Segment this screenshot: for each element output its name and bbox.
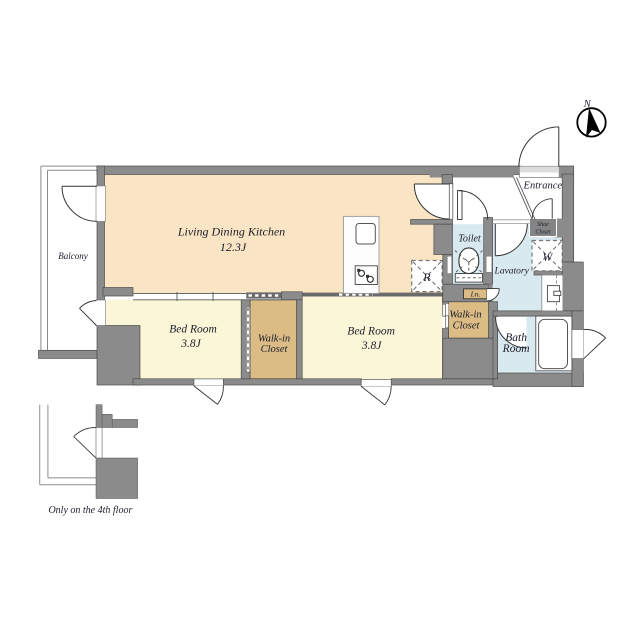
svg-text:Balcony: Balcony bbox=[58, 251, 88, 261]
svg-text:Room: Room bbox=[502, 343, 530, 355]
svg-text:W: W bbox=[543, 252, 554, 264]
svg-text:12.3J: 12.3J bbox=[220, 240, 247, 254]
svg-text:Walk-in: Walk-in bbox=[449, 310, 481, 321]
svg-text:Entrance: Entrance bbox=[523, 181, 563, 192]
svg-text:Toilet: Toilet bbox=[458, 234, 481, 245]
svg-text:Closet: Closet bbox=[261, 344, 289, 355]
svg-text:3.8J: 3.8J bbox=[361, 340, 382, 352]
svg-text:3.8J: 3.8J bbox=[180, 338, 201, 350]
svg-text:Closet: Closet bbox=[535, 230, 551, 236]
svg-text:Walk-in: Walk-in bbox=[258, 334, 290, 345]
svg-text:R: R bbox=[422, 270, 431, 284]
svg-text:Living Dining Kitchen: Living Dining Kitchen bbox=[177, 225, 285, 239]
svg-text:Ln.: Ln. bbox=[470, 290, 481, 299]
svg-text:Only on the 4th floor: Only on the 4th floor bbox=[48, 505, 132, 516]
svg-text:Lavatory: Lavatory bbox=[494, 267, 530, 277]
svg-text:Shoe: Shoe bbox=[537, 222, 549, 228]
svg-text:Bed Room: Bed Room bbox=[347, 326, 395, 338]
svg-text:Bed Room: Bed Room bbox=[169, 324, 217, 336]
svg-text:Closet: Closet bbox=[453, 321, 481, 332]
svg-text:N: N bbox=[583, 99, 592, 110]
